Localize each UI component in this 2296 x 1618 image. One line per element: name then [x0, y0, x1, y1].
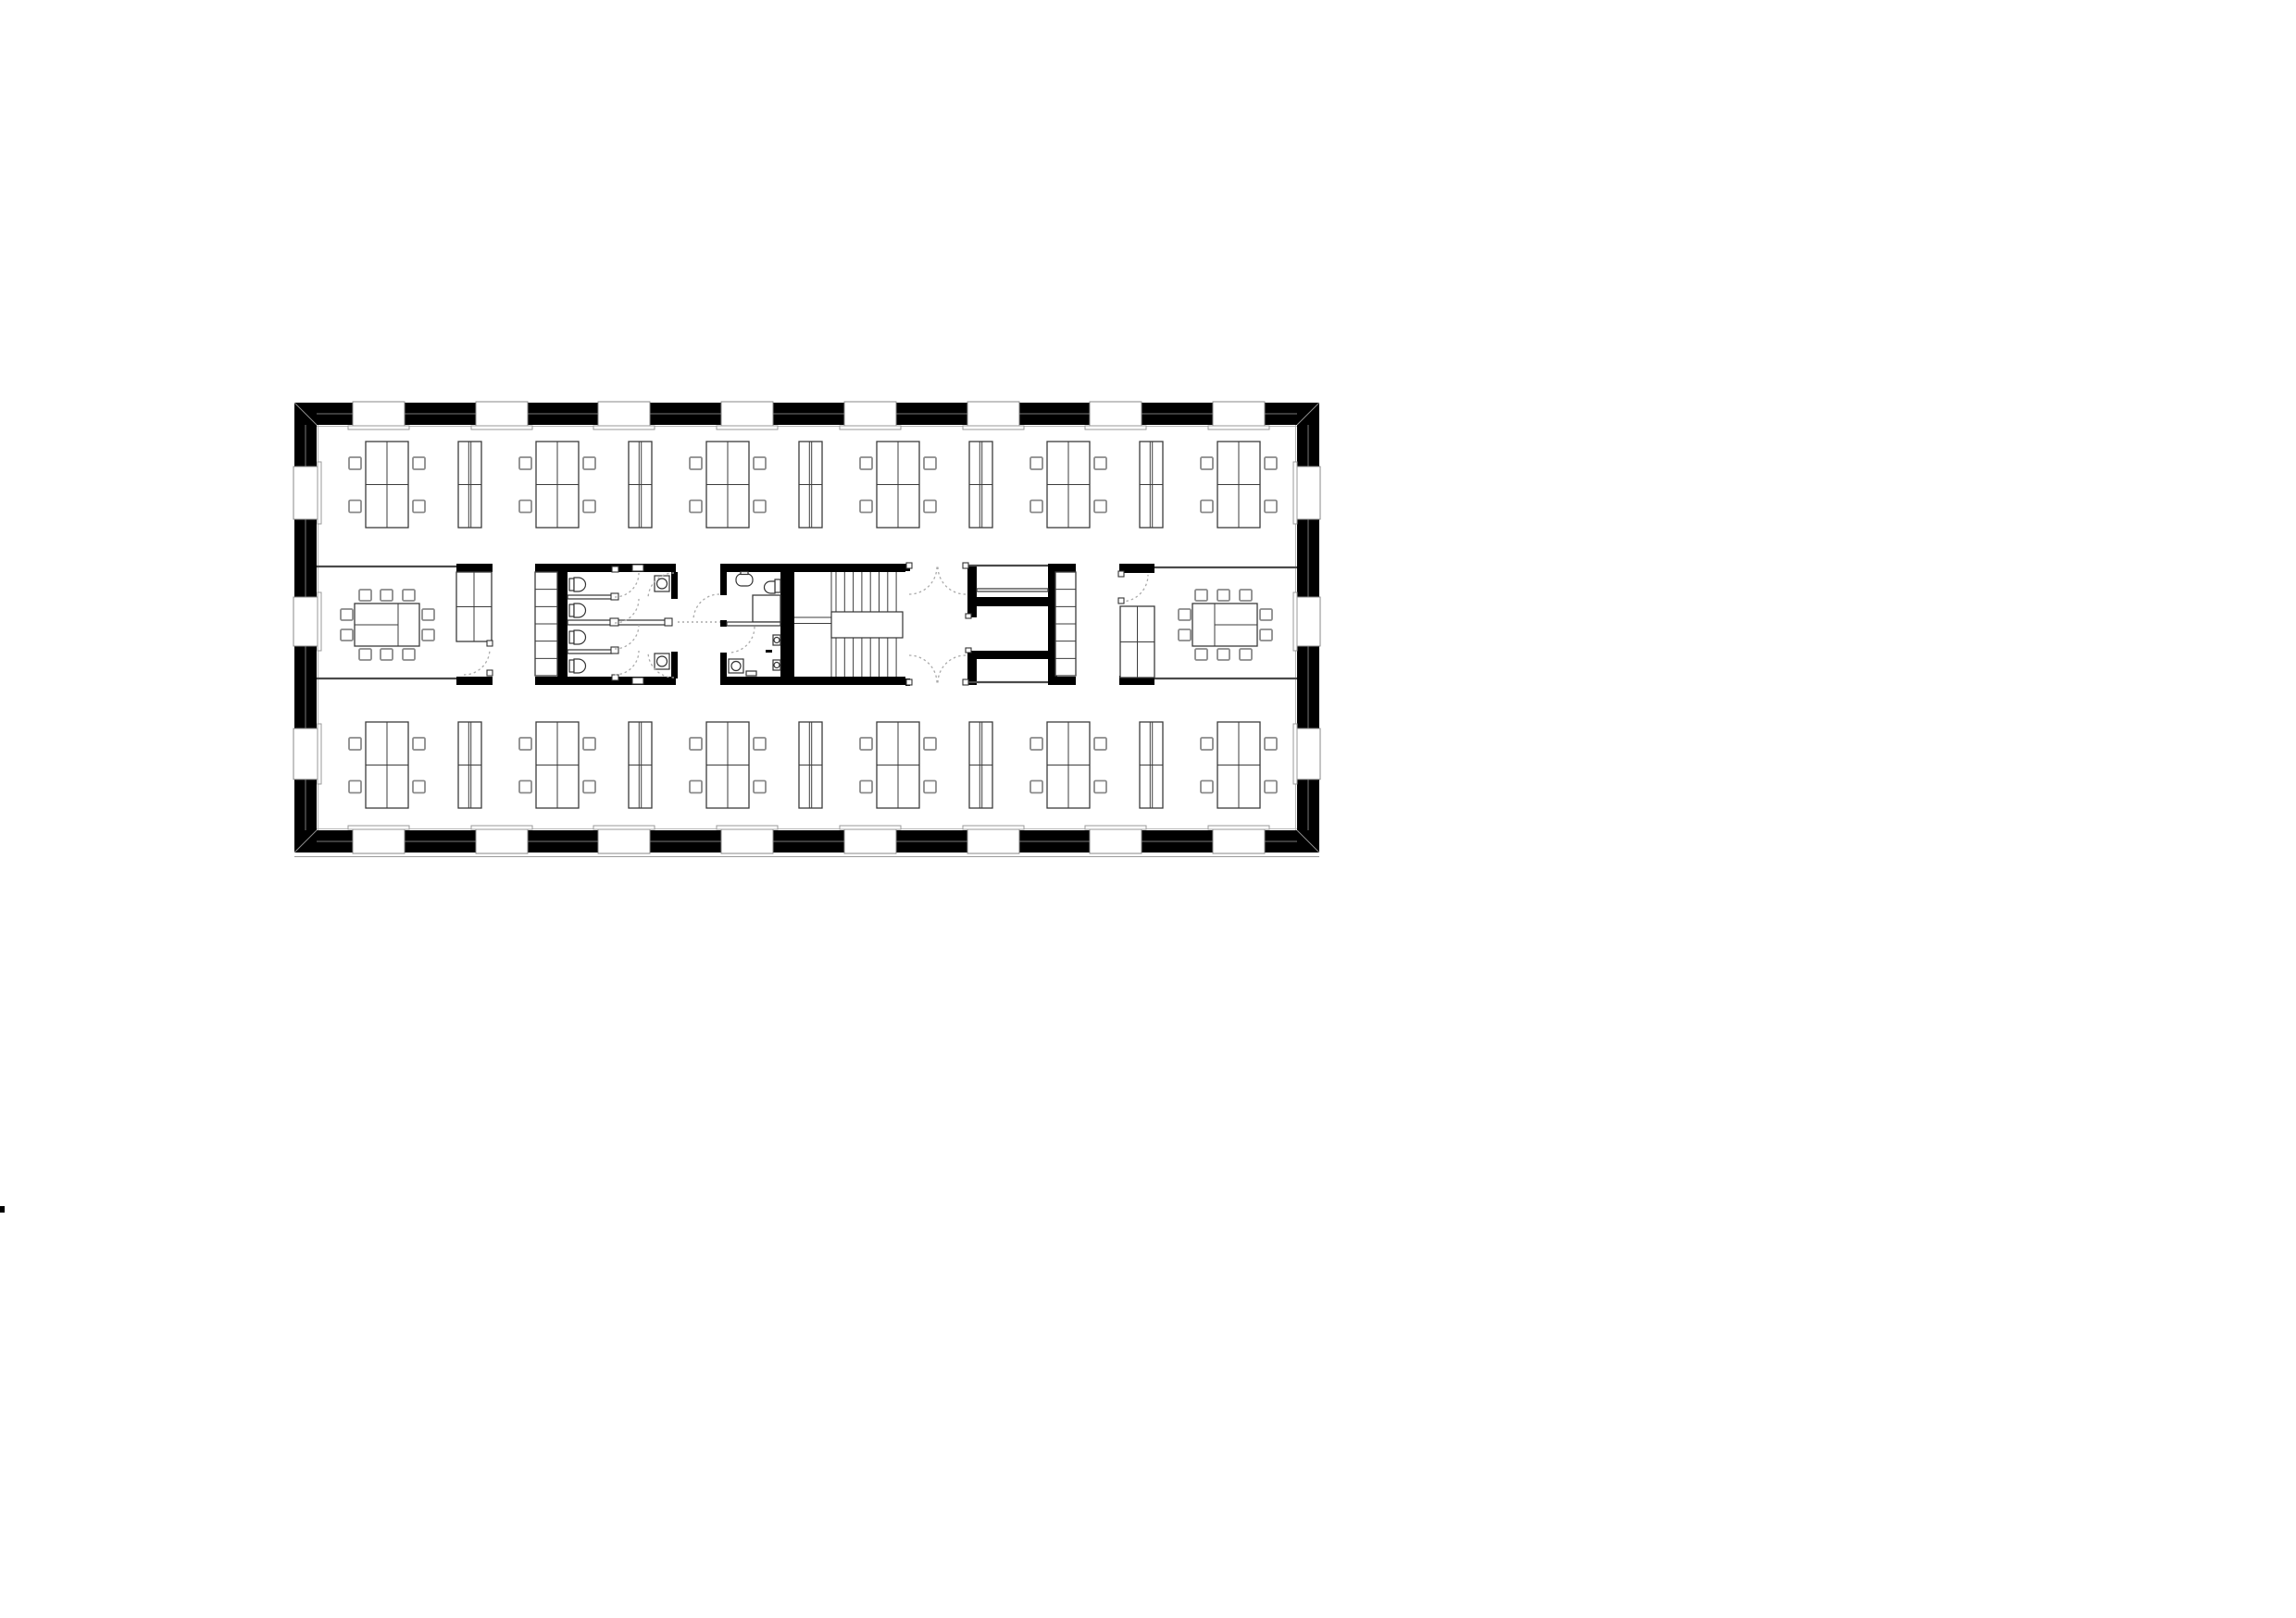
window-sill — [717, 426, 778, 429]
door-swing-arc — [1121, 575, 1148, 602]
core-wall — [967, 566, 977, 617]
window-sill — [1293, 462, 1297, 524]
office-chair — [519, 501, 531, 513]
window — [353, 829, 405, 853]
window-sill — [963, 826, 1024, 829]
toilet-cistern — [569, 579, 574, 591]
window-sill — [717, 826, 778, 829]
office-chair — [1201, 457, 1213, 469]
door-jamb — [906, 563, 912, 568]
toilet-cistern — [569, 631, 574, 643]
window — [967, 829, 1019, 853]
window-sill — [1085, 826, 1146, 829]
core-wall — [720, 653, 727, 678]
window-sill — [963, 426, 1024, 429]
grab-bar — [766, 650, 772, 653]
office-chair — [583, 501, 595, 513]
window — [1296, 597, 1320, 646]
window — [476, 402, 528, 426]
meeting-chair — [422, 609, 434, 620]
core-wall — [720, 677, 905, 685]
toilet-cistern — [569, 604, 574, 616]
door-jamb — [966, 648, 971, 653]
window-sill — [840, 426, 901, 429]
core-wall — [671, 572, 678, 599]
office-chair — [349, 781, 361, 793]
stall-front-post — [611, 593, 618, 600]
sink-tap — [741, 572, 748, 575]
floor-plan-svg — [0, 0, 2296, 1618]
window-sill — [593, 426, 655, 429]
meeting-chair — [359, 649, 371, 660]
wall-niche — [632, 565, 643, 571]
office-chair — [583, 738, 595, 750]
floor-drain — [746, 671, 756, 676]
door-jamb — [963, 563, 968, 568]
toilet-cistern — [569, 660, 574, 672]
stair-landing — [831, 612, 903, 638]
office-chair — [1094, 501, 1106, 513]
window — [353, 402, 405, 426]
window — [293, 728, 318, 779]
window — [598, 829, 650, 853]
meeting-chair — [381, 590, 393, 601]
window-sill — [593, 826, 655, 829]
window — [293, 597, 318, 646]
window-sill — [1293, 724, 1297, 784]
door-swing-arc — [938, 566, 966, 594]
meeting-chair — [1179, 609, 1191, 620]
meeting-chair — [1217, 649, 1229, 660]
window-sill — [318, 462, 321, 524]
door-jamb — [1118, 598, 1124, 604]
door-jamb — [487, 670, 493, 676]
door-swing-arc — [615, 625, 639, 649]
office-chair — [349, 457, 361, 469]
office-chair — [1201, 738, 1213, 750]
office-chair — [1201, 501, 1213, 513]
meeting-chair — [422, 629, 434, 641]
office-chair — [754, 781, 766, 793]
office-chair — [690, 457, 702, 469]
meeting-chair — [1260, 629, 1272, 641]
elevator-door-line — [977, 589, 1048, 591]
office-chair — [413, 781, 425, 793]
window-sill — [840, 826, 901, 829]
window — [1090, 829, 1142, 853]
window-sill — [1293, 592, 1297, 651]
sink-basin — [774, 638, 780, 643]
sink-basin — [657, 579, 668, 589]
page-canvas — [0, 0, 2296, 1618]
door-swing-arc — [615, 651, 639, 675]
meeting-chair — [1240, 590, 1252, 601]
stall-front-post — [612, 675, 618, 680]
door-jamb — [487, 641, 493, 646]
window — [1090, 402, 1142, 426]
office-chair — [1030, 501, 1042, 513]
core-wall — [720, 620, 727, 627]
core-wall — [720, 564, 905, 572]
door-jamb — [966, 614, 971, 618]
core-wall — [720, 570, 727, 595]
office-chair — [583, 781, 595, 793]
toilet-bowl — [765, 581, 776, 593]
door-swing-arc — [909, 655, 937, 683]
meeting-chair — [1260, 609, 1272, 620]
office-chair — [349, 738, 361, 750]
meeting-chair — [381, 649, 393, 660]
office-chair — [860, 781, 872, 793]
meeting-chair — [1195, 649, 1207, 660]
wc-dividing-wall — [727, 622, 780, 626]
office-chair — [519, 738, 531, 750]
stall-front-post — [610, 618, 618, 626]
window — [844, 402, 896, 426]
sink-basin — [774, 663, 780, 668]
window-sill — [348, 826, 409, 829]
core-wall — [784, 572, 794, 677]
window-sill — [471, 426, 532, 429]
toilet-seat — [731, 662, 741, 671]
meeting-chair — [1195, 590, 1207, 601]
meeting-chair — [403, 590, 415, 601]
window-sill — [1208, 826, 1269, 829]
meeting-chair — [359, 590, 371, 601]
office-chair — [1265, 738, 1277, 750]
office-chair — [754, 501, 766, 513]
office-chair — [754, 738, 766, 750]
office-chair — [413, 457, 425, 469]
office-chair — [754, 457, 766, 469]
window — [1213, 829, 1265, 853]
window — [1296, 728, 1320, 779]
office-chair — [860, 457, 872, 469]
toilet-bowl — [574, 578, 586, 591]
door-swing-arc — [693, 594, 719, 620]
office-chair — [1265, 501, 1277, 513]
window — [476, 829, 528, 853]
office-chair — [1201, 781, 1213, 793]
stall-partition — [568, 595, 612, 599]
toilet-bowl — [574, 630, 586, 644]
office-chair — [1094, 781, 1106, 793]
office-chair — [1265, 781, 1277, 793]
office-chair — [924, 457, 936, 469]
office-chair — [583, 457, 595, 469]
office-chair — [519, 781, 531, 793]
office-chair — [1094, 457, 1106, 469]
office-chair — [924, 501, 936, 513]
office-chair — [924, 781, 936, 793]
window — [293, 467, 318, 519]
window-sill — [1085, 426, 1146, 429]
window-sill — [348, 426, 409, 429]
window-sill — [1208, 426, 1269, 429]
shower-tray — [753, 595, 780, 622]
office-chair — [924, 738, 936, 750]
office-chair — [413, 738, 425, 750]
office-chair — [349, 501, 361, 513]
meeting-chair — [1179, 629, 1191, 641]
window — [721, 829, 773, 853]
accessible-sink — [736, 574, 753, 586]
toilet-bowl — [574, 604, 586, 617]
core-wall — [967, 651, 1048, 659]
core-wall — [967, 597, 1048, 606]
meeting-chair — [341, 629, 353, 641]
office-chair — [413, 501, 425, 513]
window — [967, 402, 1019, 426]
door-jamb — [963, 679, 968, 685]
window-sill — [318, 724, 321, 784]
stall-front-post — [665, 618, 672, 626]
window — [844, 829, 896, 853]
meeting-chair — [1240, 649, 1252, 660]
office-chair — [690, 781, 702, 793]
office-chair — [1030, 781, 1042, 793]
core-wall — [535, 677, 676, 685]
door-swing-arc — [729, 627, 755, 653]
sink-basin — [657, 656, 668, 666]
window-sill — [471, 826, 532, 829]
door-swing-arc — [464, 649, 490, 675]
meeting-chair — [403, 649, 415, 660]
wall-niche — [632, 678, 643, 684]
core-wall — [1119, 564, 1154, 573]
office-chair — [1094, 738, 1106, 750]
door-jamb — [1118, 571, 1124, 577]
toilet-bowl — [574, 659, 586, 673]
meeting-chair — [341, 609, 353, 620]
office-chair — [1265, 457, 1277, 469]
office-chair — [519, 457, 531, 469]
office-chair — [860, 501, 872, 513]
door-swing-arc — [909, 566, 937, 594]
window — [1296, 467, 1320, 519]
office-chair — [1030, 457, 1042, 469]
window — [1213, 402, 1265, 426]
office-chair — [690, 738, 702, 750]
core-wall — [456, 564, 493, 572]
meeting-chair — [1217, 590, 1229, 601]
window — [721, 402, 773, 426]
stall-partition — [568, 650, 612, 653]
core-wall — [557, 572, 568, 677]
office-chair — [1030, 738, 1042, 750]
office-chair — [690, 501, 702, 513]
core-wall — [671, 652, 678, 678]
core-wall — [456, 677, 493, 685]
core-wall — [535, 564, 676, 572]
office-chair — [860, 738, 872, 750]
stall-front-post — [612, 566, 618, 572]
toilet-cistern — [775, 579, 780, 592]
window — [598, 402, 650, 426]
stray-mark — [0, 1206, 5, 1213]
door-swing-arc — [938, 655, 966, 683]
window-sill — [318, 592, 321, 651]
stall-front-post — [611, 647, 618, 653]
door-jamb — [906, 679, 912, 685]
